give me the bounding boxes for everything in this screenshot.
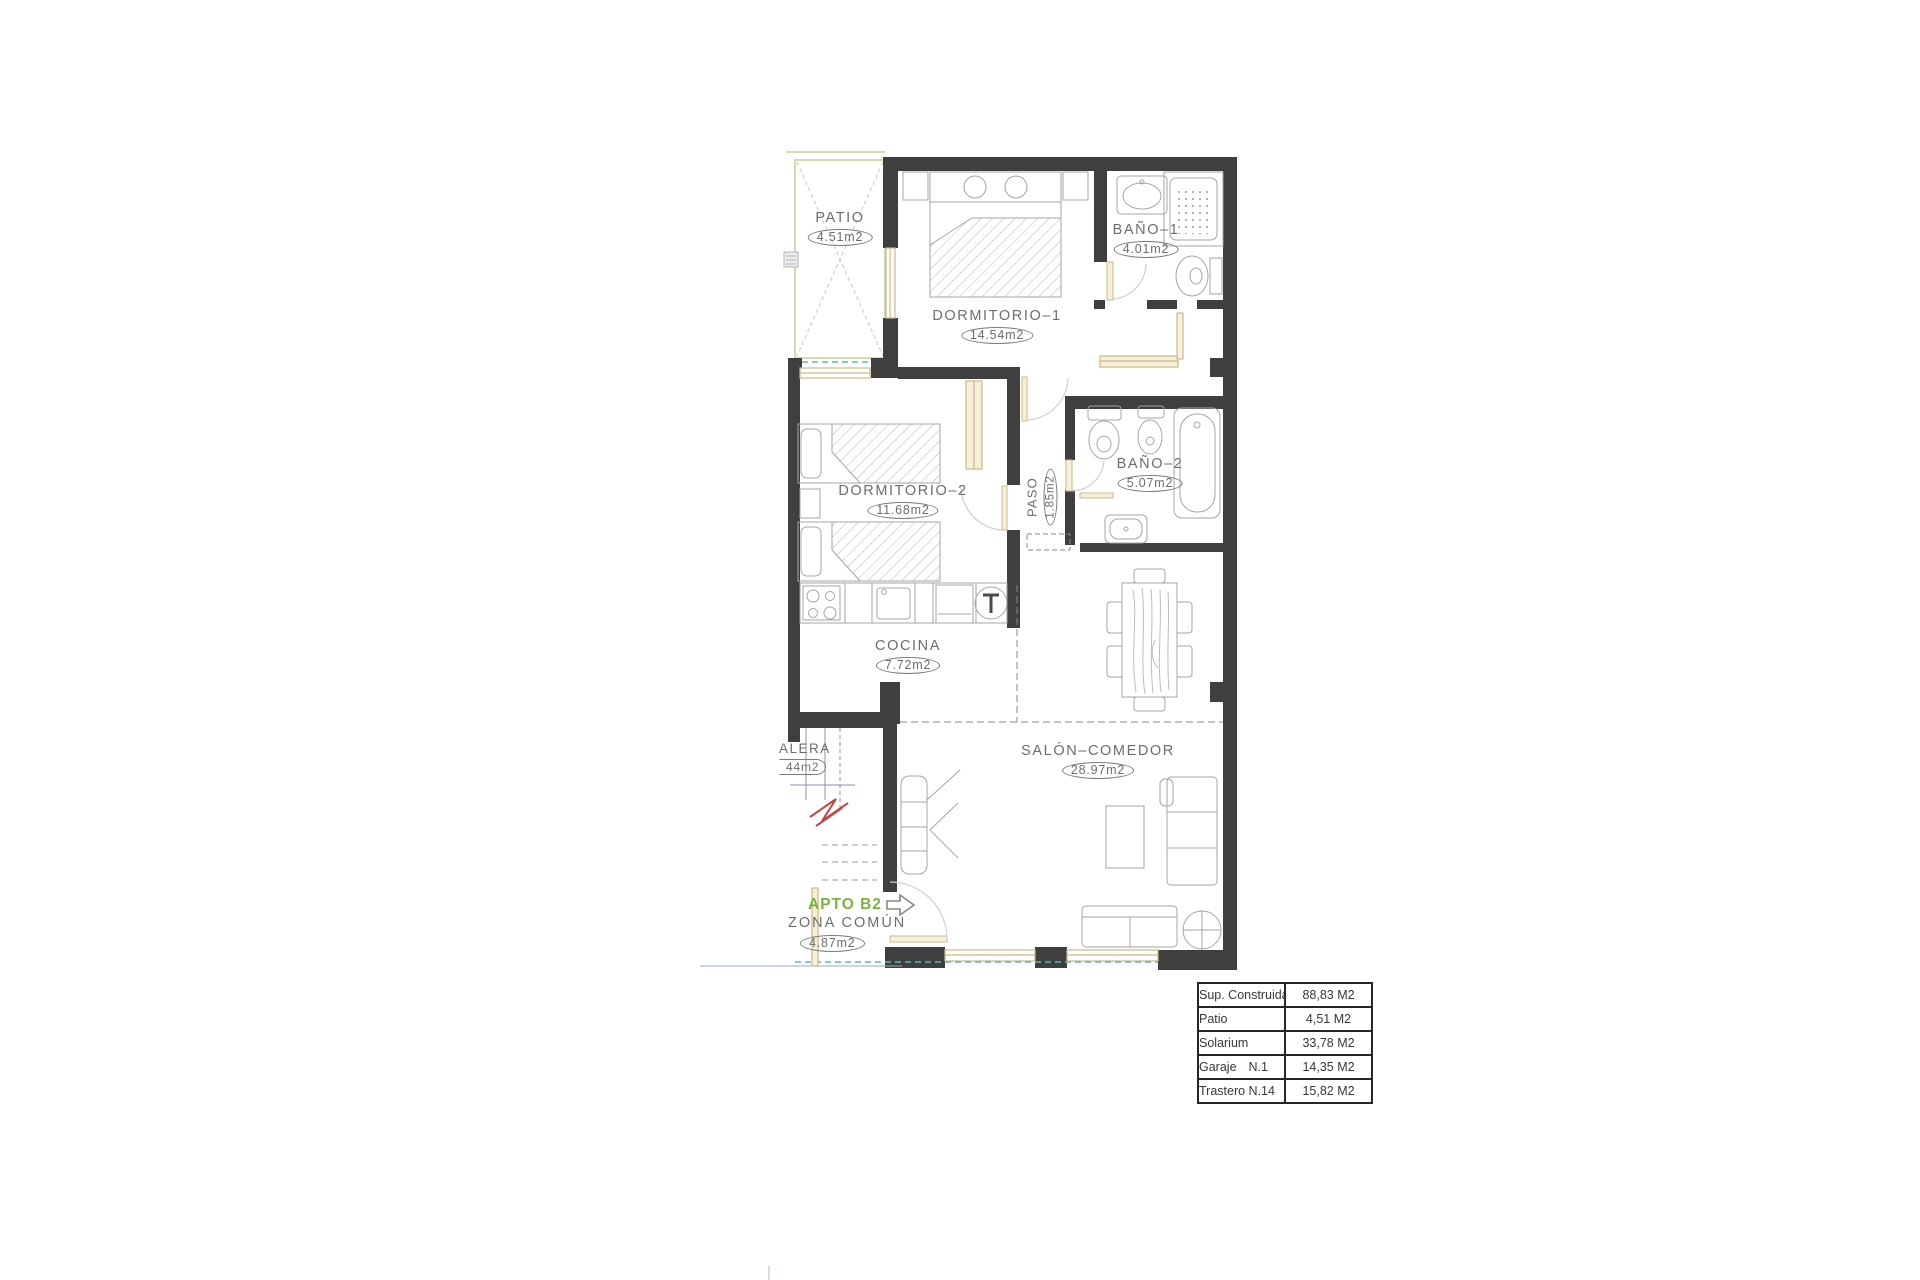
room-area: 1.85m2 <box>1044 468 1058 525</box>
hall-cabinet <box>901 770 960 874</box>
row-value: 14,35 M2 <box>1285 1055 1372 1079</box>
area-summary-table: Sup. Construida 88,83 M2 Patio 4,51 M2 S… <box>1197 982 1373 1104</box>
room-area: 44m2 <box>779 759 826 775</box>
sofas <box>1082 777 1217 947</box>
side-table <box>1183 911 1221 949</box>
room-name: SALÓN–COMEDOR <box>1021 743 1175 760</box>
table-row: Solarium 33,78 M2 <box>1198 1031 1372 1055</box>
row-value: 15,82 M2 <box>1285 1079 1372 1103</box>
coffee-table <box>1106 806 1144 868</box>
row-label: Sup. Construida <box>1199 988 1285 1002</box>
label-dormitorio2: DORMITORIO–2 11.68m2 <box>838 483 967 519</box>
label-paso: PASO 1.85m2 <box>1024 468 1059 525</box>
room-name: COCINA <box>875 638 941 655</box>
room-name: BAÑO–2 <box>1117 456 1184 473</box>
row-label: Garaje <box>1199 1060 1237 1074</box>
room-area: 7.72m2 <box>876 657 941 674</box>
table-row: Trastero N.14 15,82 M2 <box>1198 1079 1372 1103</box>
patio-drain <box>784 252 798 267</box>
dining-table <box>1107 569 1192 711</box>
room-name: BAÑO–1 <box>1113 222 1180 239</box>
label-patio: PATIO 4.51m2 <box>808 210 873 246</box>
table-row: Patio 4,51 M2 <box>1198 1007 1372 1031</box>
floorplan-page: PATIO 4.51m2 DORMITORIO–1 14.54m2 BAÑO–1… <box>0 0 1920 1280</box>
room-area: 14.54m2 <box>961 327 1033 344</box>
label-escalera: ALERA 44m2 <box>779 740 831 776</box>
page-bottom-mark <box>768 1266 770 1280</box>
row-label: Solarium <box>1199 1036 1248 1050</box>
row-value: 4,51 M2 <box>1285 1007 1372 1031</box>
room-area: 4.51m2 <box>808 229 873 246</box>
row-label: Patio <box>1199 1012 1228 1026</box>
windows <box>800 248 1158 961</box>
room-name: PATIO <box>808 210 873 227</box>
apartment-label: APTO B2 <box>808 896 882 914</box>
row-value: 88,83 M2 <box>1285 983 1372 1007</box>
floorplan-drawing <box>0 0 1920 1280</box>
room-name: ALERA <box>779 740 831 757</box>
apto-zona-block: APTO B2 ZONA COMÚN 4.87m2 <box>788 892 938 952</box>
table-row: GarajeN.1 14,35 M2 <box>1198 1055 1372 1079</box>
room-area: 28.97m2 <box>1062 762 1134 779</box>
room-name: DORMITORIO–1 <box>932 308 1061 325</box>
row-label: Trastero N.14 <box>1199 1084 1275 1098</box>
label-dormitorio1: DORMITORIO–1 14.54m2 <box>932 308 1061 344</box>
room-area: 11.68m2 <box>867 502 938 519</box>
room-name: PASO <box>1024 468 1041 525</box>
kitchen-fixtures <box>800 583 1007 623</box>
row-label2: N.1 <box>1249 1060 1268 1074</box>
label-bano1: BAÑO–1 4.01m2 <box>1113 222 1180 258</box>
bed-dormitorio1 <box>903 172 1088 297</box>
patio-diagonals <box>797 162 883 356</box>
label-cocina: COCINA 7.72m2 <box>875 638 941 674</box>
patio-outline <box>786 152 885 358</box>
room-name: DORMITORIO–2 <box>838 483 967 500</box>
room-area: 5.07m2 <box>1118 475 1183 492</box>
room-area: 4.01m2 <box>1114 241 1179 258</box>
label-bano2: BAÑO–2 5.07m2 <box>1117 456 1184 492</box>
label-salon: SALÓN–COMEDOR 28.97m2 <box>1021 743 1175 779</box>
row-value: 33,78 M2 <box>1285 1031 1372 1055</box>
table-row: Sup. Construida 88,83 M2 <box>1198 983 1372 1007</box>
room-area: 4.87m2 <box>800 935 865 952</box>
